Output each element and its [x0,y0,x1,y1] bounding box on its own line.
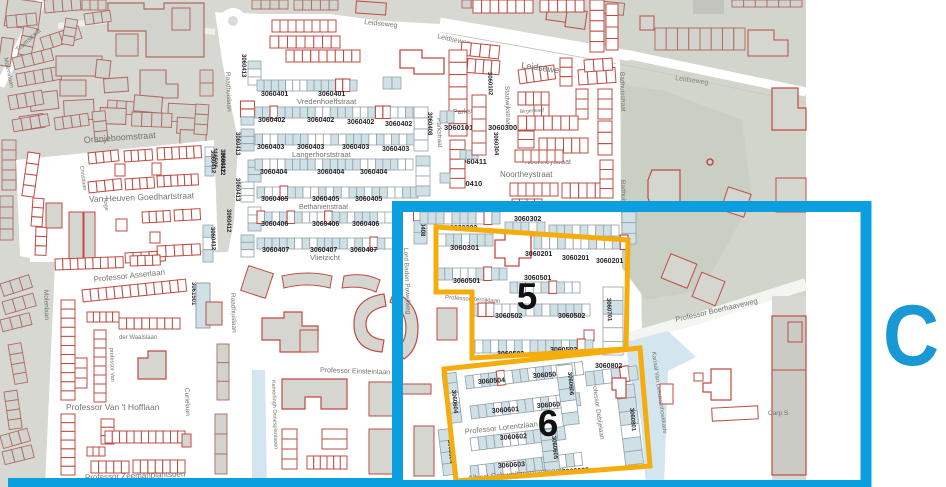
svg-text:Bethanienstraat: Bethanienstraat [299,204,348,211]
svg-text:3060402: 3060402 [347,119,374,126]
svg-text:3060302: 3060302 [514,216,541,223]
svg-text:3060201: 3060201 [562,255,589,262]
svg-text:3060412: 3060412 [225,209,231,233]
svg-text:Raadhuislaan: Raadhuislaan [229,293,237,333]
svg-text:3060201: 3060201 [525,251,552,258]
svg-text:Molenlaan: Molenlaan [42,290,50,321]
svg-text:Noortheystraat: Noortheystraat [500,170,553,179]
svg-text:3060405: 3060405 [355,196,382,203]
svg-text:3060406: 3060406 [312,221,339,228]
svg-text:5: 5 [517,276,538,317]
svg-text:3060404: 3060404 [260,169,287,176]
svg-text:3060701: 3060701 [605,298,612,322]
svg-text:Vredenhoeffstraat: Vredenhoeffstraat [297,97,357,106]
svg-text:Stadwijkstraat: Stadwijkstraat [503,86,511,127]
svg-text:3060402: 3060402 [307,117,334,124]
svg-text:3060413: 3060413 [234,178,240,202]
svg-text:Carp S: Carp S [768,410,789,417]
svg-text:Raadhuislaan: Raadhuislaan [224,72,232,112]
svg-text:3060501: 3060501 [453,278,480,285]
svg-text:3060405: 3060405 [261,196,288,203]
svg-text:3060412: 3060412 [219,149,225,173]
svg-text:3060412: 3060412 [209,150,216,174]
svg-text:3060403: 3060403 [257,144,284,151]
svg-text:3060201: 3060201 [596,258,623,265]
svg-text:Professor Van 't Hofflaan: Professor Van 't Hofflaan [66,402,160,412]
svg-text:Badhuisstraat: Badhuisstraat [618,72,626,112]
svg-text:3060404: 3060404 [317,169,344,176]
svg-text:3060408: 3060408 [426,112,432,136]
svg-text:3060405: 3060405 [312,196,339,203]
svg-text:Langerhorststraat: Langerhorststraat [292,150,352,159]
svg-text:3060413: 3060413 [234,132,240,156]
svg-text:3060102: 3060102 [486,72,493,96]
svg-text:3060402: 3060402 [258,117,285,124]
svg-text:3060407: 3060407 [350,247,377,254]
svg-text:6: 6 [538,403,559,444]
svg-text:3060413: 3060413 [240,54,246,78]
svg-text:3060101: 3060101 [444,123,473,132]
svg-text:3060407: 3060407 [262,247,289,254]
svg-text:3060301: 3060301 [450,243,479,252]
svg-text:C: C [883,288,939,384]
svg-text:3060401: 3060401 [261,91,288,98]
svg-text:3060300: 3060300 [488,123,517,132]
svg-text:3060406: 3060406 [352,221,379,228]
svg-text:3060412: 3060412 [209,227,216,251]
svg-text:3060406: 3060406 [261,221,288,228]
svg-text:3060402: 3060402 [385,121,412,128]
svg-text:professor Van: professor Van [108,348,115,382]
svg-text:Curielaan: Curielaan [183,388,191,416]
svg-text:3060404: 3060404 [360,169,387,176]
svg-text:der Waalslaan: der Waalslaan [119,335,157,341]
svg-text:Vlietzicht: Vlietzicht [310,253,341,262]
svg-text:3061501: 3061501 [190,282,196,306]
svg-text:3060502: 3060502 [558,313,585,320]
svg-text:3060802: 3060802 [595,363,622,370]
svg-text:3060304: 3060304 [492,132,499,156]
svg-text:3060403: 3060403 [382,146,409,153]
